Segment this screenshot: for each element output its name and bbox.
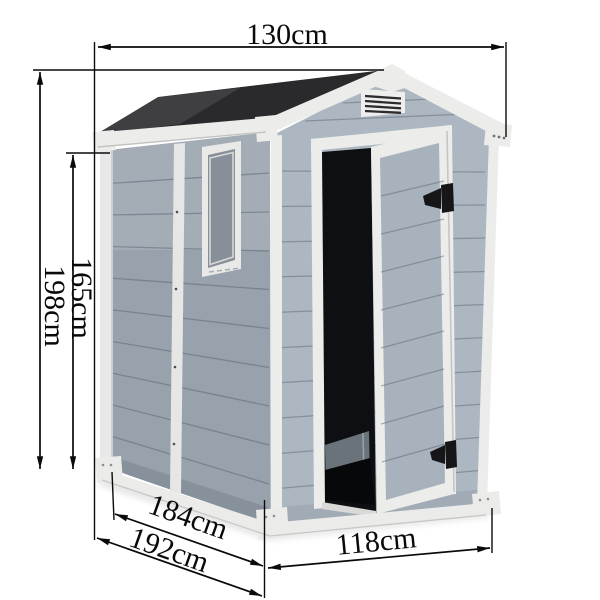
front-left-corner-trim [271, 135, 282, 524]
window-glass [208, 149, 235, 268]
shed-illustration [92, 64, 512, 540]
back-corner-trim [100, 149, 113, 471]
left-wall-top-shade [108, 132, 270, 250]
base-corner-front-right [472, 491, 501, 517]
door-hinge-upper-plate [441, 183, 454, 213]
gable-vent [361, 89, 405, 117]
shed-dimension-figure: 130cm 165cm 198cm 184cm 192cm 118cm [0, 0, 600, 600]
door-hinge-lower-plate [445, 440, 457, 469]
dim-height-total-label: 198cm [38, 265, 71, 347]
dim-width-top-label: 130cm [246, 18, 328, 51]
left-wall-window [202, 141, 241, 277]
door-assembly [311, 125, 457, 517]
product-dimension-diagram: 130cm 165cm 198cm 184cm 192cm 118cm [0, 0, 600, 600]
base-corner-back-left [95, 456, 123, 483]
ridge-cap [376, 64, 408, 92]
eave-cap-back-left [92, 130, 116, 152]
